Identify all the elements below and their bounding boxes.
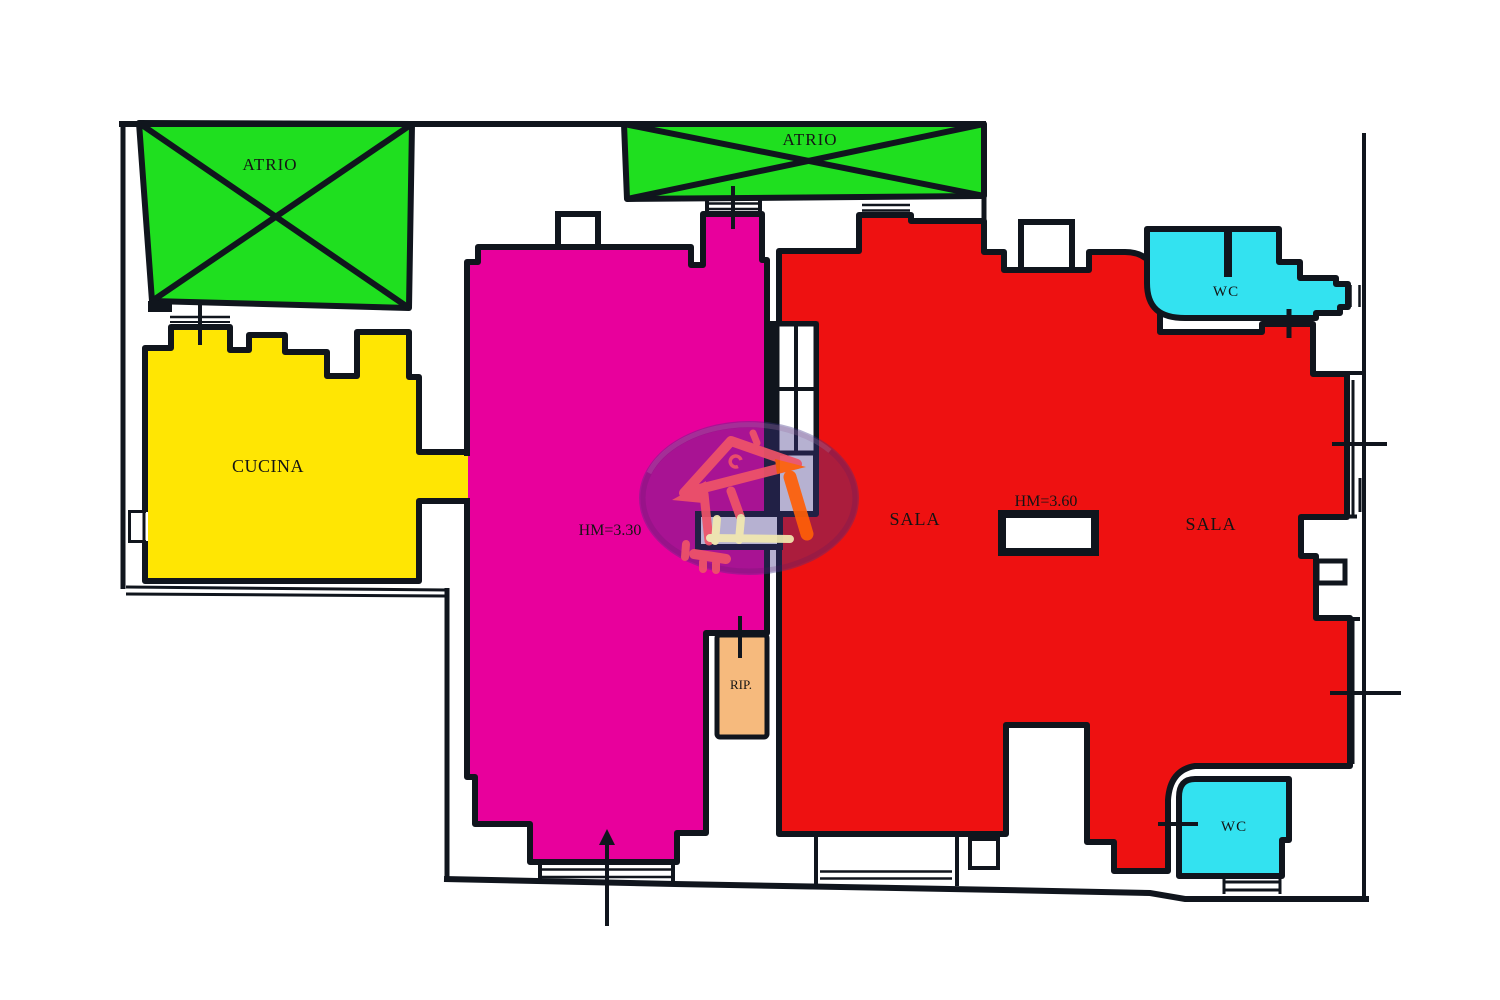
svg-text:WC: WC	[1221, 819, 1247, 835]
svg-text:WC: WC	[1213, 284, 1239, 300]
svg-text:HM=3.60: HM=3.60	[1015, 493, 1078, 510]
svg-text:ATRIO: ATRIO	[782, 130, 837, 149]
svg-text:ATRIO: ATRIO	[242, 155, 297, 174]
svg-text:SALA: SALA	[889, 509, 940, 529]
svg-text:HM=3.30: HM=3.30	[579, 522, 642, 539]
svg-text:CUCINA: CUCINA	[232, 456, 304, 476]
svg-text:RIP.: RIP.	[730, 677, 752, 692]
svg-text:SALA: SALA	[1185, 514, 1236, 534]
